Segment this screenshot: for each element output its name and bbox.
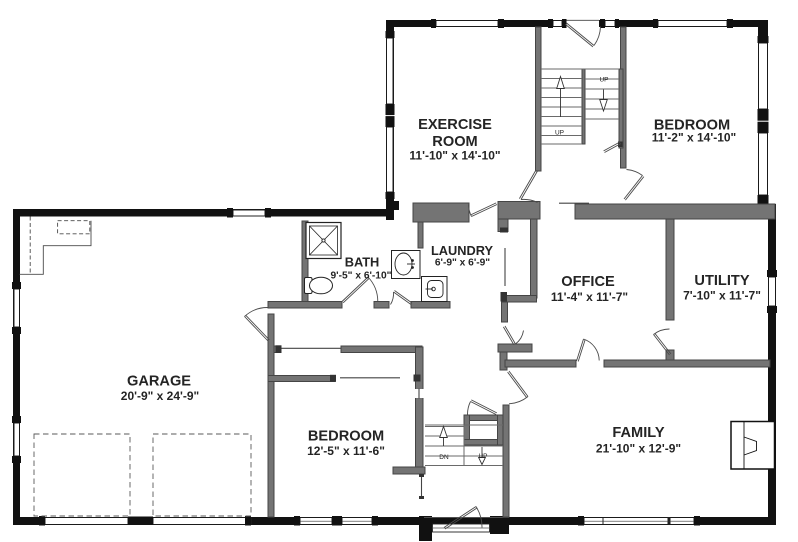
- svg-text:11'-10" x 14'-10": 11'-10" x 14'-10": [409, 149, 500, 163]
- svg-text:20'-9" x 24'-9": 20'-9" x 24'-9": [121, 389, 199, 403]
- svg-text:UP: UP: [599, 77, 608, 84]
- svg-text:11'-4" x 11'-7": 11'-4" x 11'-7": [551, 290, 628, 304]
- svg-text:BATH: BATH: [345, 255, 380, 270]
- svg-text:9'-5" x 6'-10": 9'-5" x 6'-10": [331, 271, 392, 282]
- svg-text:GARAGE: GARAGE: [127, 374, 191, 390]
- svg-text:21'-10" x 12'-9": 21'-10" x 12'-9": [596, 442, 681, 456]
- svg-text:7'-10" x 11'-7": 7'-10" x 11'-7": [683, 289, 761, 303]
- svg-text:12'-5" x 11'-6": 12'-5" x 11'-6": [307, 444, 385, 458]
- svg-text:UP: UP: [555, 130, 564, 137]
- svg-text:FAMILY: FAMILY: [612, 425, 664, 441]
- svg-text:DN: DN: [439, 454, 449, 461]
- svg-text:UTILITY: UTILITY: [694, 273, 749, 289]
- svg-text:BEDROOM: BEDROOM: [308, 429, 384, 445]
- svg-text:UP: UP: [478, 453, 487, 460]
- svg-text:OFFICE: OFFICE: [561, 274, 615, 290]
- svg-text:LAUNDRY: LAUNDRY: [431, 243, 494, 258]
- svg-text:11'-2" x 14'-10": 11'-2" x 14'-10": [652, 131, 736, 145]
- svg-text:6'-9" x 6'-9": 6'-9" x 6'-9": [435, 258, 490, 269]
- svg-text:EXERCISE: EXERCISE: [418, 117, 492, 133]
